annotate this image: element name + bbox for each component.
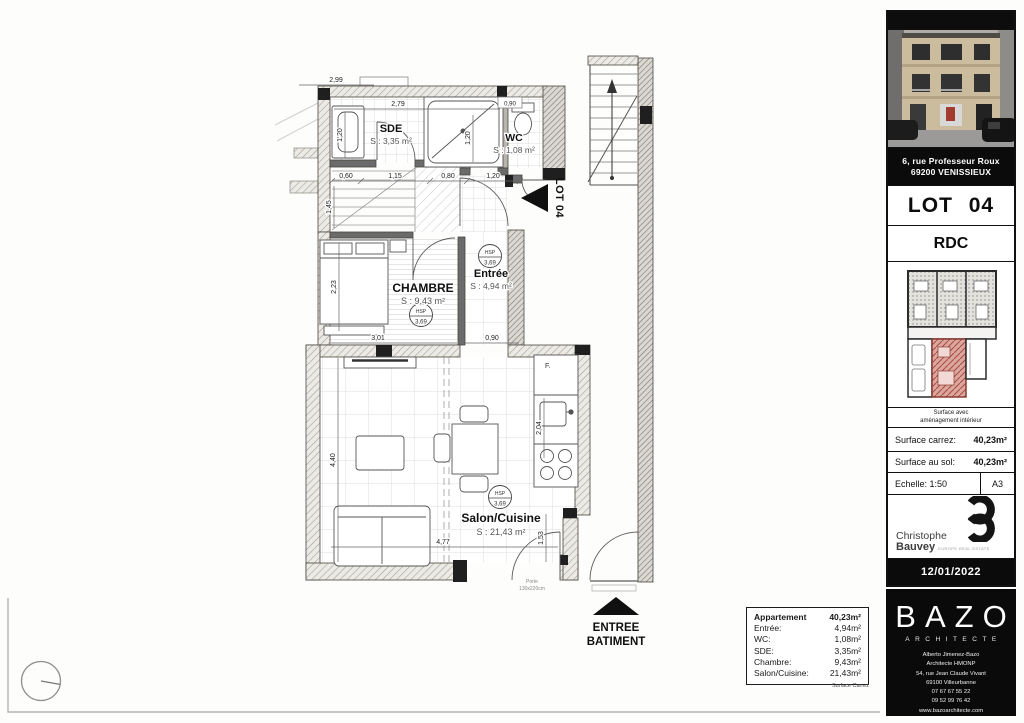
building-address: 6, rue Professeur Roux 69200 VENISSIEUX	[888, 148, 1014, 186]
surface-table-footnote: Surface Carrez	[746, 683, 869, 689]
north-orientation-icon	[22, 662, 61, 701]
svg-text:3,69: 3,69	[494, 502, 506, 508]
level-cell: RDC	[888, 226, 1014, 262]
address-line1: 6, rue Professeur Roux	[888, 156, 1014, 166]
svg-text:Porte: Porte	[526, 579, 538, 585]
titleblock-top-bar	[888, 12, 1014, 30]
dim-label: 1,20	[486, 173, 500, 180]
key-plan	[888, 262, 1014, 408]
svg-text:LOT 04: LOT 04	[553, 178, 565, 219]
key-plan-caption-line1: Surface avec	[888, 410, 1014, 418]
table-row: Salon/Cuisine: 21,43m²	[754, 668, 861, 679]
surface-carrez-value: 40,23m²	[973, 435, 1007, 445]
svg-text:BATIMENT: BATIMENT	[587, 636, 646, 648]
surface-sol-label: Surface au sol:	[895, 457, 955, 467]
lot-tag: LOT 04	[521, 178, 565, 219]
agency-tagline: EUROPE REAL ESTATE	[938, 546, 990, 551]
agency-name: Christophe BauveyEUROPE REAL ESTATE	[896, 531, 990, 553]
surface-sol-row: Surface au sol: 40,23m²	[888, 452, 1014, 473]
building-photo	[888, 30, 1014, 148]
row-value: 9,43m²	[835, 657, 861, 668]
dim-label: 0,90	[504, 102, 516, 108]
title-block: 6, rue Professeur Roux 69200 VENISSIEUX …	[886, 10, 1016, 716]
building-photo-image	[888, 30, 1014, 148]
row-value: 4,94m²	[835, 623, 861, 634]
firm-contact-line: 54, rue Jean Claude Vivant	[886, 670, 1016, 679]
paper-size: A3	[980, 473, 1014, 494]
row-value: 1,08m²	[835, 634, 861, 645]
svg-text:HSP: HSP	[495, 491, 506, 497]
hsp-symbol-entree: HSP 3,69	[479, 245, 502, 268]
room-area: S : 21,43 m²	[476, 527, 525, 537]
drawing-date: 12/01/2022	[888, 559, 1014, 585]
row-label: Chambre:	[754, 657, 791, 668]
firm-contact-line: www.bazoarchitecte.com	[886, 707, 1016, 716]
firm-name: BAZO	[886, 599, 1016, 635]
firm-contact-line: 69100 Villeurbanne	[886, 679, 1016, 688]
row-label: Salon/Cuisine:	[754, 668, 809, 679]
building-entrance-marker: ENTREE BATIMENT	[587, 597, 646, 648]
room-area: S : 1,08 m²	[493, 145, 535, 155]
lot-cell: LOT 04	[888, 186, 1014, 226]
key-plan-image	[888, 263, 1014, 407]
row-label: WC:	[754, 634, 771, 645]
door-note: Porte 130x220cm	[519, 579, 545, 592]
row-value: 40,23m²	[829, 612, 861, 623]
dim-label: 1,45	[326, 200, 333, 214]
dim-label: 0,90	[485, 335, 499, 342]
agency-name-line2: BauveyEUROPE REAL ESTATE	[896, 542, 990, 553]
table-row: SDE: 3,35m²	[754, 646, 861, 657]
title-block-upper: 6, rue Professeur Roux 69200 VENISSIEUX …	[886, 10, 1016, 587]
shower	[424, 97, 503, 167]
building-staircase	[588, 58, 638, 185]
row-label: Entrée:	[754, 623, 781, 634]
key-plan-caption-line2: aménagement intérieur	[888, 418, 1014, 426]
row-label: SDE:	[754, 646, 774, 657]
row-label: Appartement	[754, 612, 806, 623]
table-row: WC: 1,08m²	[754, 634, 861, 645]
entrance-arrow-icon	[593, 597, 639, 615]
firm-contact-line: Alberto Jimenez-Bazo	[886, 651, 1016, 660]
room-area: S : 4,94 m²	[470, 281, 512, 291]
agency-logo: Christophe BauveyEUROPE REAL ESTATE	[888, 495, 1014, 559]
table-row: Entrée: 4,94m²	[754, 623, 861, 634]
scale-label: Echelle: 1:50	[888, 473, 980, 494]
row-value: 21,43m²	[830, 668, 861, 679]
svg-text:3,69: 3,69	[415, 320, 427, 326]
drawing-sheet: F. 2,99 2,79 0,90 1,20 1,20 0,60 1,15 0,…	[0, 0, 1024, 723]
svg-text:130x220cm: 130x220cm	[519, 586, 545, 592]
dim-label: 0,60	[339, 173, 353, 180]
dim-label: 4,40	[330, 453, 337, 467]
table-row: Appartement 40,23m²	[754, 612, 861, 623]
room-name: SDE	[380, 123, 403, 135]
fridge-label: F.	[545, 363, 551, 370]
scale-row: Echelle: 1:50 A3	[888, 473, 1014, 495]
dim-label: 1,20	[337, 128, 344, 142]
kitchen-counter	[534, 355, 578, 487]
lot-arrow-icon	[521, 184, 548, 212]
room-name: Entrée	[474, 268, 508, 280]
firm-contact-line: 07 67 67 55 22	[886, 688, 1016, 697]
surface-carrez-label: Surface carrez:	[895, 435, 956, 445]
surface-carrez-row: Surface carrez: 40,23m²	[888, 428, 1014, 452]
firm-contact-line: 09 52 99 76 42	[886, 697, 1016, 706]
room-area: S : 9,43 m²	[401, 296, 445, 306]
key-plan-caption: Surface avec aménagement intérieur	[888, 408, 1014, 428]
dim-label: 2,04	[536, 421, 543, 435]
table-row: Chambre: 9,43m²	[754, 657, 861, 668]
floor-plan: F. 2,99 2,79 0,90 1,20 1,20 0,60 1,15 0,…	[0, 0, 1024, 723]
hsp-symbol-salon: HSP 3,69	[489, 486, 512, 509]
dim-label: 3,01	[371, 335, 385, 342]
coffee-table	[356, 436, 404, 470]
firm-contact: Alberto Jimenez-Bazo Architecte HMONP 54…	[886, 651, 1016, 716]
tv-unit	[344, 357, 416, 368]
surface-sol-value: 40,23m²	[973, 457, 1007, 467]
firm-contact-line: Architecte HMONP	[886, 660, 1016, 669]
address-line2: 69200 VENISSIEUX	[888, 167, 1014, 177]
room-name: WC	[505, 132, 523, 144]
room-area: S : 3,35 m²	[370, 136, 412, 146]
row-value: 3,35m²	[835, 646, 861, 657]
dim-label: 1,53	[538, 531, 545, 545]
dim-label: 2,23	[331, 280, 338, 294]
dim-label: 2,79	[391, 101, 405, 108]
dim-label: 1,15	[388, 173, 402, 180]
firm-subtitle: ARCHITECTE	[886, 636, 1016, 643]
room-name: Salon/Cuisine	[461, 511, 541, 525]
dim-label: 4,77	[436, 539, 450, 546]
dim-label: 1,20	[465, 131, 472, 145]
room-name: CHAMBRE	[392, 281, 453, 295]
surface-table: Appartement 40,23m² Entrée: 4,94m² WC: 1…	[746, 607, 869, 685]
hsp-symbol-chambre: HSP 3,69	[410, 304, 433, 327]
svg-text:3,69: 3,69	[484, 261, 496, 267]
dim-label: 0,80	[441, 173, 455, 180]
sofa	[334, 506, 430, 566]
architect-block: BAZO ARCHITECTE Alberto Jimenez-Bazo Arc…	[886, 589, 1016, 716]
svg-text:ENTREE: ENTREE	[593, 622, 640, 634]
svg-text:HSP: HSP	[485, 250, 496, 256]
svg-text:HSP: HSP	[416, 309, 427, 315]
dim-label: 2,99	[329, 77, 343, 84]
